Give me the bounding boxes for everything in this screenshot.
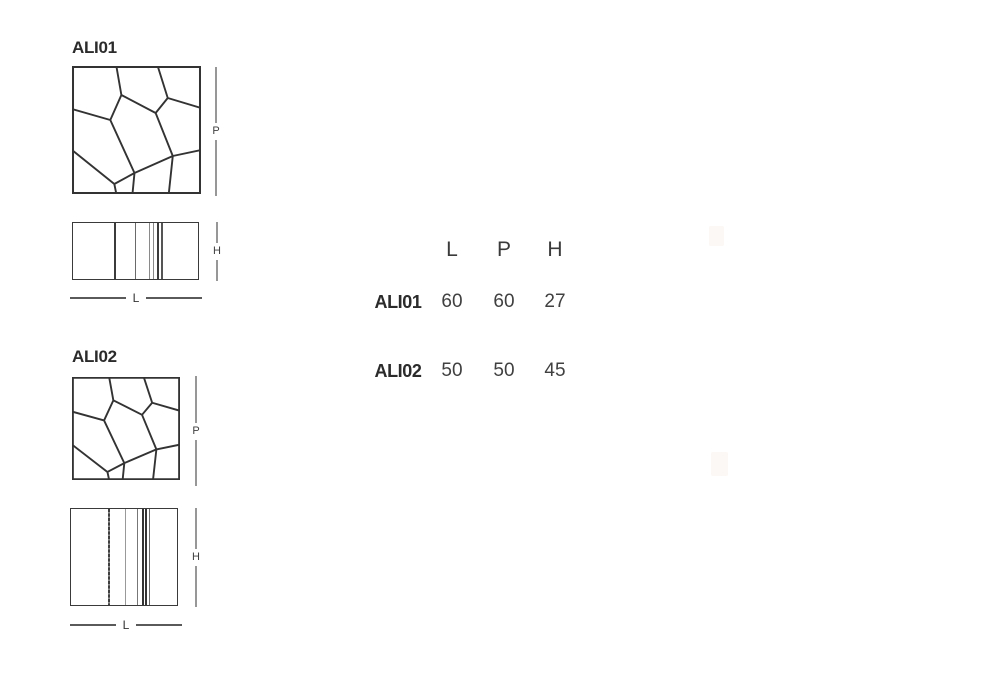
col-header-height: H: [528, 238, 582, 262]
dimension-line: [216, 260, 217, 281]
panel-joint-line: [142, 509, 144, 605]
dimension-line: [70, 297, 126, 298]
ali01-front-view-drawing: [72, 222, 199, 280]
col-header-depth: P: [480, 238, 528, 262]
ali01-depth-dimension: P: [209, 67, 223, 196]
panel-joint-line: [125, 509, 126, 605]
table-header-row: L P H: [372, 238, 592, 262]
dimension-line: [215, 67, 216, 123]
panel-joint-line: [114, 223, 116, 279]
ali02-length-dimension: L: [70, 618, 182, 632]
ali01-length-dimension: L: [70, 291, 202, 305]
faint-watermark: [709, 226, 724, 246]
table-row: ALI02 50 50 45: [372, 359, 592, 383]
panel-joint-line: [145, 509, 147, 605]
depth-dimension-label: P: [192, 423, 199, 440]
dimension-line: [136, 624, 182, 625]
voronoi-pattern: [72, 66, 201, 194]
dimension-line: [195, 440, 196, 487]
panel-joint-line: [135, 223, 136, 279]
dimension-line: [70, 624, 116, 625]
product-title-ali01: ALI01: [72, 38, 117, 58]
textured-joint-line: [108, 509, 111, 605]
dimension-line: [146, 297, 202, 298]
panel-joint-line: [149, 223, 150, 279]
ali02-front-view-drawing: [70, 508, 178, 606]
spec-sheet: ALI01 P H L ALI02: [0, 0, 1000, 700]
ali02-top-view-drawing: [72, 377, 180, 480]
table-row: ALI01 60 60 27: [372, 290, 592, 314]
panel-joint-line: [149, 509, 150, 605]
dimension-line: [195, 376, 196, 423]
ali01-top-view-drawing: [72, 66, 201, 194]
panel-joint-line: [161, 223, 163, 279]
ali01-depth-value: 60: [480, 291, 528, 313]
length-dimension-label: L: [116, 619, 137, 631]
depth-dimension-label: P: [212, 123, 219, 140]
voronoi-pattern: [72, 377, 180, 480]
ali02-length-value: 50: [424, 360, 480, 382]
dimension-line: [195, 566, 196, 607]
dimension-table: L P H ALI01 60 60 27 ALI02 50 50 45: [372, 238, 592, 383]
dimension-line: [195, 508, 196, 549]
ali02-height-dimension: H: [189, 508, 203, 607]
row-label-ali01: ALI01: [372, 292, 424, 313]
col-header-length: L: [424, 238, 480, 262]
ali01-height-dimension: H: [210, 222, 224, 281]
ali02-depth-dimension: P: [189, 376, 203, 486]
faint-watermark: [711, 452, 728, 476]
product-title-ali02: ALI02: [72, 347, 117, 367]
ali02-depth-value: 50: [480, 360, 528, 382]
panel-joint-line: [153, 223, 154, 279]
height-dimension-label: H: [213, 243, 221, 260]
dimension-line: [215, 140, 216, 196]
ali01-height-value: 27: [528, 291, 582, 313]
height-dimension-label: H: [192, 549, 200, 566]
ali02-height-value: 45: [528, 360, 582, 382]
panel-joint-line: [137, 509, 138, 605]
ali01-length-value: 60: [424, 291, 480, 313]
dimension-line: [216, 222, 217, 243]
panel-joint-line: [157, 223, 159, 279]
row-label-ali02: ALI02: [372, 361, 424, 382]
length-dimension-label: L: [126, 292, 147, 304]
